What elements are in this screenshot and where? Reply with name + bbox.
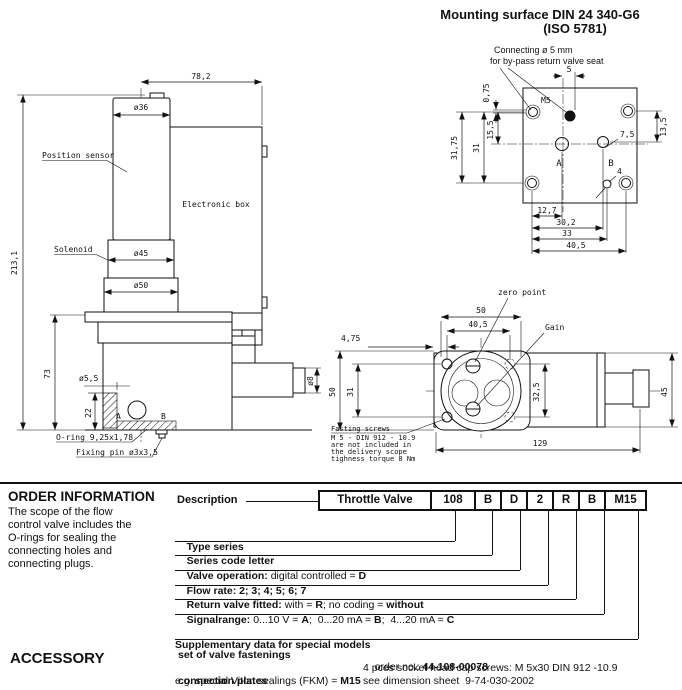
dim-325: 32,5 bbox=[532, 382, 541, 401]
o-ring-label: O-ring 9,25x1,78 bbox=[56, 433, 133, 442]
dim-405-top: 40,5 bbox=[468, 320, 487, 329]
accessory-heading: ACCESSORY bbox=[10, 650, 104, 667]
fastening-note-line5: tighness torque 8 Nm bbox=[331, 455, 415, 463]
order-info-paragraph-line: O-rings for sealing the bbox=[8, 532, 116, 544]
dim-solenoid-dia: ø45 bbox=[134, 249, 149, 258]
mounting-port-b-label: B bbox=[608, 159, 613, 169]
top-view-drawing: zero point Gain 50 40,5 4,75 50 31 bbox=[328, 288, 678, 463]
electronic-box-label: Electronic box bbox=[182, 200, 250, 209]
code-connector-line bbox=[604, 511, 605, 614]
datasheet-page: 213,1 78,2 ø36 Position sensor Electroni… bbox=[0, 0, 682, 690]
description-label: Description bbox=[177, 494, 238, 506]
section-divider bbox=[0, 482, 682, 484]
m5-label: M5 bbox=[541, 96, 551, 105]
row-type-series: Type series bbox=[175, 528, 455, 542]
code-connector-line bbox=[576, 511, 577, 599]
port-b-label: B bbox=[161, 412, 166, 421]
order-info-paragraph-line: The scope of the flow bbox=[8, 506, 113, 518]
row-signalrange: Signalrange: 0...10 V = A; 0...20 mA = B… bbox=[175, 601, 604, 615]
dim-129: 129 bbox=[533, 439, 548, 448]
position-sensor-label: Position sensor bbox=[42, 151, 114, 160]
code-connector-line bbox=[548, 511, 549, 585]
row-series-code-letter: Series code letter bbox=[175, 542, 492, 556]
side-view-drawing: 213,1 78,2 ø36 Position sensor Electroni… bbox=[10, 72, 321, 457]
dim-hole-dia: ø5,5 bbox=[79, 374, 98, 383]
code-box-type-series: 108 bbox=[430, 490, 476, 511]
dim-127-label: 12,7 bbox=[537, 206, 556, 215]
code-box-flow-rate: 2 bbox=[526, 490, 554, 511]
accessory-item1-label: set of valve fastenings bbox=[178, 649, 291, 661]
code-box-valve-operation: D bbox=[500, 490, 528, 511]
order-info-paragraph-line: control valve includes the bbox=[8, 519, 132, 531]
code-connector-line bbox=[492, 511, 493, 555]
mounting-note-line1: Connecting ø 5 mm bbox=[494, 45, 573, 55]
dim-075-label: 0,75 bbox=[482, 83, 491, 102]
fastening-note-line1: Fasting screws bbox=[331, 425, 390, 433]
mounting-surface-drawing: Mounting surface DIN 24 340-G6 (ISO 5781… bbox=[440, 7, 668, 254]
dim-width: 78,2 bbox=[191, 72, 210, 81]
dim-475: 4,75 bbox=[341, 334, 360, 343]
dim-50-top: 50 bbox=[476, 306, 486, 315]
valve-body bbox=[103, 343, 232, 430]
row-supplementary: Supplementary data for special models e.… bbox=[175, 615, 638, 640]
technical-drawings: 213,1 78,2 ø36 Position sensor Electroni… bbox=[0, 0, 682, 483]
dim-31-label: 31 bbox=[472, 143, 481, 153]
mounting-port-a-label: A bbox=[556, 159, 562, 169]
order-info-paragraph-line: connecting plugs. bbox=[8, 558, 94, 570]
sensor-nub bbox=[150, 93, 164, 98]
mounting-title-line1: Mounting surface DIN 24 340-G6 bbox=[440, 7, 639, 22]
solenoid-face bbox=[441, 351, 521, 431]
accessory-item1-line2: 4 pces socket head cap screws: M 5x30 DI… bbox=[363, 662, 617, 674]
dim-4-label: 4 bbox=[617, 167, 622, 176]
dim-45: 45 bbox=[660, 387, 669, 397]
code-box-series-letter: B bbox=[474, 490, 502, 511]
dim-155-label: 15,5 bbox=[486, 120, 495, 139]
dim-5-label: 5 bbox=[567, 65, 572, 74]
o-ring-seal bbox=[117, 421, 176, 430]
mounting-holes bbox=[525, 104, 635, 190]
fixing-pin-label: Fixing pin ø3x3,5 bbox=[76, 448, 158, 457]
fixing-pin bbox=[156, 430, 167, 434]
dim-3175-label: 31,75 bbox=[450, 136, 459, 160]
dim-135-label: 13,5 bbox=[659, 117, 668, 136]
dim-405-label: 40,5 bbox=[566, 241, 585, 250]
row-return-valve: Return valve fitted: with = R; no coding… bbox=[175, 586, 576, 600]
zero-point-label: zero point bbox=[498, 288, 546, 297]
dim-31-top-view: 31 bbox=[346, 387, 355, 397]
bypass-connecting-hole bbox=[565, 111, 576, 122]
top-plug-cap bbox=[633, 370, 649, 407]
row-valve-operation: Valve operation: digital controlled = D bbox=[175, 557, 520, 571]
dim-body-height: 73 bbox=[43, 369, 52, 379]
row-text: M15 bbox=[340, 675, 360, 687]
order-information-heading: ORDER INFORMATION bbox=[8, 489, 155, 504]
accessory-item2-value: see dimension sheet 9-74-030-2002 bbox=[363, 675, 534, 687]
code-box-signalrange: B bbox=[578, 490, 606, 511]
dim-plug-dia: ø8 bbox=[306, 376, 315, 386]
dim-33-label: 33 bbox=[562, 229, 572, 238]
code-box-supplementary: M15 bbox=[604, 490, 647, 511]
dim-302-label: 30,2 bbox=[556, 218, 575, 227]
port-a-bore bbox=[128, 401, 146, 419]
mounting-note-line2: for by-pass return valve seat bbox=[490, 56, 604, 66]
mounting-title-line2: (ISO 5781) bbox=[543, 21, 607, 36]
mounting-plate bbox=[523, 88, 637, 203]
solenoid-upper bbox=[108, 240, 174, 278]
row-flow-rate: Flow rate: 2; 3; 4; 5; 6; 7 bbox=[175, 572, 548, 586]
accessory-item2-label: connection plates bbox=[178, 675, 267, 687]
dim-75-label: 7,5 bbox=[620, 130, 635, 139]
dim-sensor-dia: ø36 bbox=[134, 103, 149, 112]
electronic-box-body bbox=[170, 127, 262, 313]
top-plug-stub bbox=[605, 373, 633, 404]
dim-body-dia: ø50 bbox=[134, 281, 149, 290]
code-connector-line bbox=[520, 511, 521, 570]
valve-flange bbox=[85, 312, 232, 322]
dim-50-left: 50 bbox=[328, 387, 337, 397]
description-leader-line bbox=[246, 501, 318, 502]
code-connector-line bbox=[455, 511, 456, 541]
solenoid-label: Solenoid bbox=[54, 245, 93, 254]
code-box-product: Throttle Valve bbox=[318, 490, 432, 511]
port-a-label: A bbox=[116, 412, 121, 421]
order-info-paragraph-line: connecting holes and bbox=[8, 545, 112, 557]
code-box-return-valve: R bbox=[552, 490, 580, 511]
order-code-boxes: Throttle Valve 108 B D 2 R B M15 bbox=[318, 490, 647, 511]
gain-label: Gain bbox=[545, 323, 564, 332]
dim-total-height: 213,1 bbox=[10, 251, 19, 275]
pilot-hole bbox=[103, 393, 117, 428]
dim-hole-depth: 22 bbox=[84, 408, 93, 418]
code-connector-line bbox=[638, 511, 639, 639]
